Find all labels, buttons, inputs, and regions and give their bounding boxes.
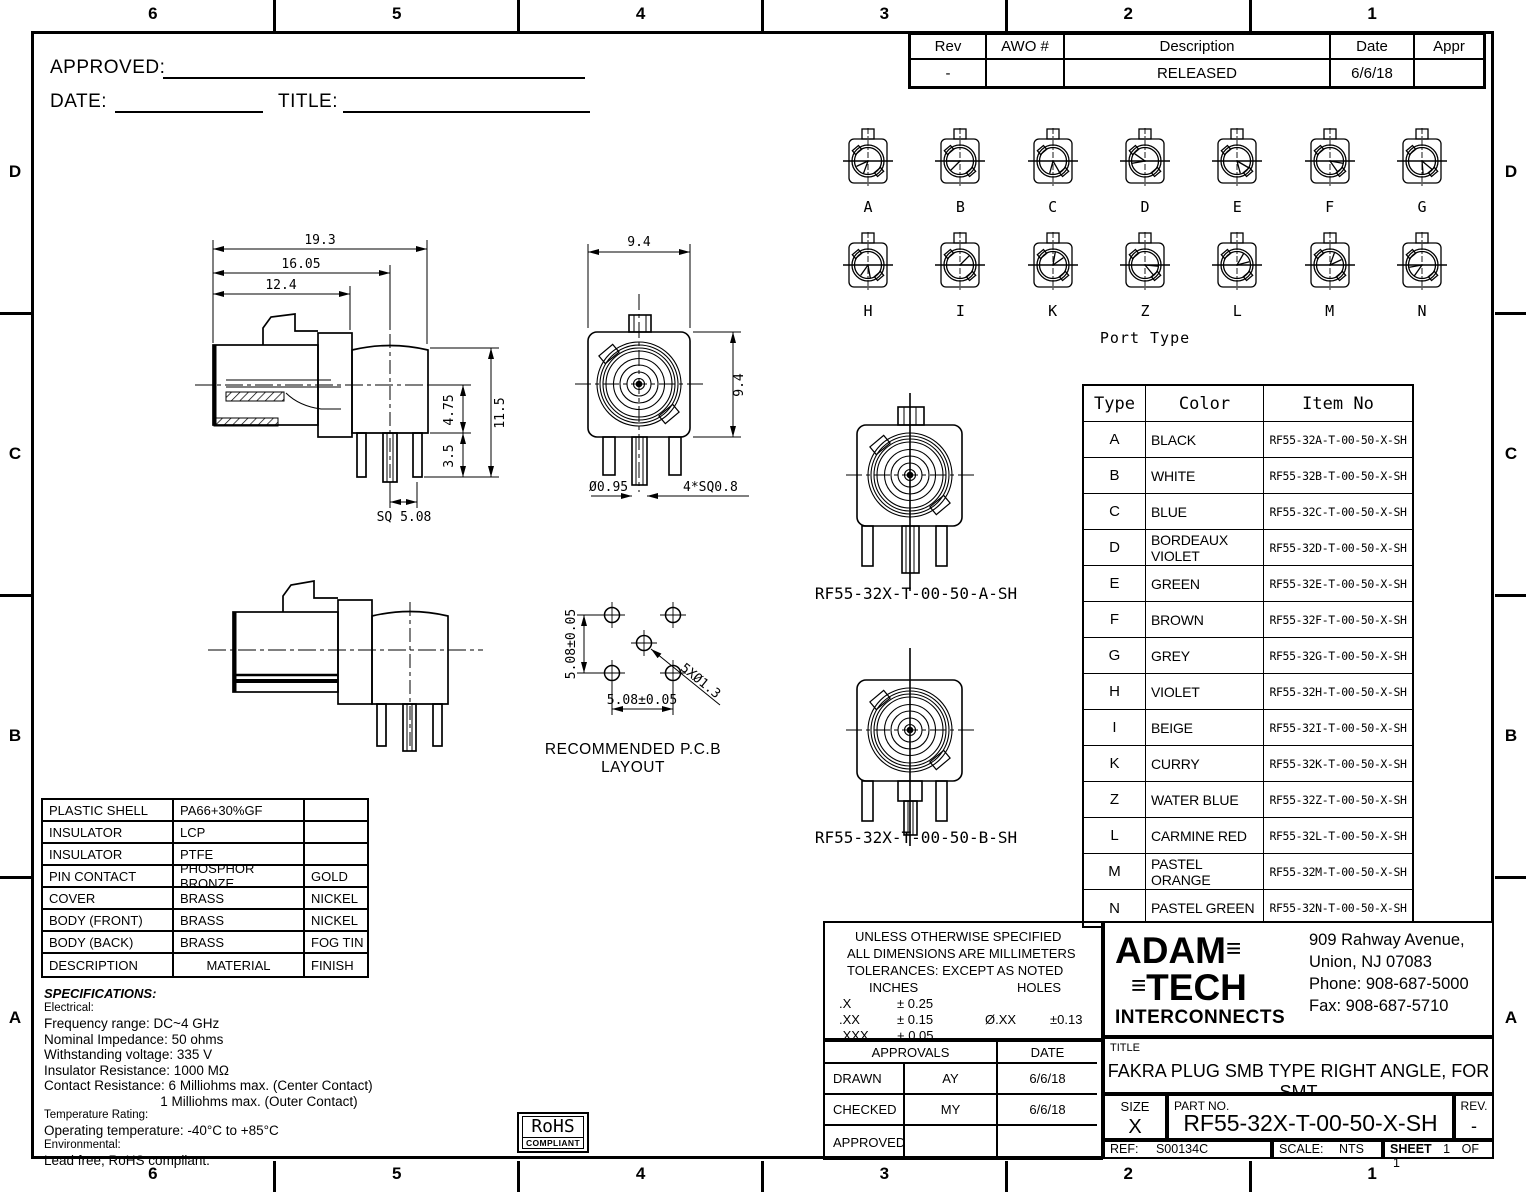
type-table-color: GREY <box>1146 638 1264 674</box>
port-type: A <box>836 127 900 216</box>
materials-table-cell <box>305 822 367 844</box>
scale-box: SCALE: NTS <box>1272 1140 1383 1159</box>
spec-section-label: Temperature Rating: <box>44 1109 464 1123</box>
title-label: TITLE: <box>278 91 338 113</box>
drawing-variant-a <box>846 391 1026 596</box>
port-type: H <box>836 231 900 320</box>
port-type-label: E <box>1205 198 1269 216</box>
type-table-color: BEIGE <box>1146 710 1264 746</box>
pcb-layout-caption: RECOMMENDED P.C.B LAYOUT <box>514 741 752 777</box>
date-fill-line <box>115 111 263 113</box>
dim-length-mid: 16.05 <box>281 257 320 272</box>
type-table-header: Type <box>1084 386 1146 422</box>
materials-table-cell: BRASS <box>174 888 305 910</box>
approved-fill-line <box>163 77 585 79</box>
materials-table-cell: PA66+30%GF <box>174 800 305 822</box>
rev-table-header: Appr <box>1415 35 1483 60</box>
title-box-label: TITLE <box>1110 1042 1140 1054</box>
materials-table-cell: MATERIAL <box>174 954 305 976</box>
port-type-label: I <box>928 302 992 320</box>
zone-tick-left <box>0 876 31 879</box>
company-logo: ADAM≡ ≡TECH INTERCONNECTS <box>1115 931 1285 1029</box>
zone-column-label-bottom: 1 <box>1357 1164 1387 1184</box>
port-type: K <box>1021 231 1085 320</box>
type-table-color: GREEN <box>1146 566 1264 602</box>
type-table-item-no: RF55-32D-T-00-50-X-SH <box>1264 530 1412 566</box>
date-label: DATE: <box>50 91 107 113</box>
specifications-body: Electrical:Frequency range: DC~4 GHzNomi… <box>44 1002 464 1168</box>
tolerance-line-2: ALL DIMENSIONS ARE MILLIMETERS <box>847 946 1076 961</box>
rev-value: - <box>1456 1116 1492 1137</box>
zone-row-label-right: D <box>1499 162 1523 182</box>
zone-column-label-bottom: 4 <box>626 1164 656 1184</box>
materials-table-cell: PIN CONTACT <box>43 866 174 888</box>
dim-length-front: 12.4 <box>265 278 296 293</box>
type-table-item-no: RF55-32A-T-00-50-X-SH <box>1264 422 1412 458</box>
rev-table-cell <box>1415 60 1483 86</box>
logo-adam: ADAM <box>1115 930 1226 971</box>
title-fill-line <box>343 111 590 113</box>
checked-label: CHECKED <box>825 1095 905 1126</box>
company-address: 909 Rahway Avenue, Union, NJ 07083 Phone… <box>1309 929 1469 1017</box>
zone-column-label-bottom: 3 <box>869 1164 899 1184</box>
type-table-item-no: RF55-32Z-T-00-50-X-SH <box>1264 782 1412 818</box>
type-color-item-table: TypeColorItem NoABLACKRF55-32A-T-00-50-X… <box>1082 384 1414 928</box>
zone-column-label-top: 5 <box>382 4 412 24</box>
approved-date <box>998 1126 1097 1158</box>
type-table-item-no: RF55-32I-T-00-50-X-SH <box>1264 710 1412 746</box>
drawing-side-view-dimensioned: 19.3 16.05 12.4 4.75 3.5 11.5 SQ 5.08 <box>181 230 581 530</box>
materials-table-cell: NICKEL <box>305 910 367 932</box>
approved-label: APPROVED: <box>50 57 165 79</box>
type-table-color: WHITE <box>1146 458 1264 494</box>
approvals-table: APPROVALS DATE DRAWN AY 6/6/18 CHECKED M… <box>823 1040 1103 1160</box>
dim-height-center: 4.75 <box>442 394 457 425</box>
approvals-header: APPROVALS <box>825 1042 998 1064</box>
materials-table-cell: FINISH <box>305 954 367 976</box>
port-type: G <box>1390 127 1454 216</box>
drawing-sheet: 665544332211DDCCBBAA APPROVED: DATE: TIT… <box>0 0 1526 1192</box>
address-line-3: Phone: 908-687-5000 <box>1309 973 1469 995</box>
type-table-type: I <box>1084 710 1146 746</box>
zone-row-label-right: A <box>1499 1008 1523 1028</box>
address-line-2: Union, NJ 07083 <box>1309 951 1469 973</box>
port-connector-icon <box>1304 127 1356 189</box>
sheet-label: SHEET <box>1390 1142 1432 1156</box>
rev-table-cell: RELEASED <box>1065 60 1331 86</box>
zone-column-label-top: 2 <box>1113 4 1143 24</box>
size-label: SIZE <box>1105 1099 1165 1114</box>
port-type: M <box>1298 231 1362 320</box>
drawing-front-view-dimensioned: 9.4 9.4 Ø0.95 4*SQ0.8 <box>563 230 818 530</box>
zone-row-label-left: B <box>3 726 27 746</box>
approvals-date-header: DATE <box>998 1042 1097 1064</box>
zone-column-label-top: 3 <box>869 4 899 24</box>
zone-row-label-left: D <box>3 162 27 182</box>
type-table-item-no: RF55-32M-T-00-50-X-SH <box>1264 854 1412 890</box>
logo-lines-right-icon: ≡ <box>1226 933 1241 963</box>
type-table-type: D <box>1084 530 1146 566</box>
type-table-item-no: RF55-32K-T-00-50-X-SH <box>1264 746 1412 782</box>
dim-pin-diameter: Ø0.95 <box>589 480 628 495</box>
type-table-item-no: RF55-32E-T-00-50-X-SH <box>1264 566 1412 602</box>
drawing-variant-b <box>846 646 1026 851</box>
type-table-color: CARMINE RED <box>1146 818 1264 854</box>
port-type-label: N <box>1390 302 1454 320</box>
size-box: SIZE X <box>1103 1094 1167 1140</box>
zone-column-label-bottom: 2 <box>1113 1164 1143 1184</box>
port-connector-icon <box>1027 231 1079 293</box>
rev-table-cell <box>987 60 1065 86</box>
zone-row-label-left: A <box>3 1008 27 1028</box>
tolerance-line-3: TOLERANCES: EXCEPT AS NOTED <box>847 963 1063 978</box>
zone-tick-bottom <box>1249 1161 1252 1192</box>
zone-tick-right <box>1495 876 1526 879</box>
spec-line: Withstanding voltage: 335 V <box>44 1047 464 1063</box>
specifications-title: SPECIFICATIONS: <box>44 986 464 1002</box>
type-table-color: VIOLET <box>1146 674 1264 710</box>
checked-initials: MY <box>905 1095 998 1126</box>
drawn-initials: AY <box>905 1064 998 1095</box>
type-table-color: BORDEAUX VIOLET <box>1146 530 1264 566</box>
tolerance-holes-label: HOLES <box>1017 980 1061 995</box>
port-connector-icon <box>1396 127 1448 189</box>
zone-row-label-right: C <box>1499 444 1523 464</box>
spec-line: Frequency range: DC~4 GHz <box>44 1016 464 1032</box>
address-line-4: Fax: 908-687-5710 <box>1309 995 1469 1017</box>
company-block: ADAM≡ ≡TECH INTERCONNECTS 909 Rahway Ave… <box>1103 921 1494 1037</box>
tolerance-line-1: UNLESS OTHERWISE SPECIFIED <box>855 929 1061 944</box>
zone-tick-bottom <box>517 1161 520 1192</box>
type-table-header: Item No <box>1264 386 1412 422</box>
type-table-type: M <box>1084 854 1146 890</box>
port-connector-icon <box>1211 127 1263 189</box>
part-no-box: PART NO. RF55-32X-T-00-50-X-SH <box>1167 1094 1454 1140</box>
zone-tick-left <box>0 594 31 597</box>
materials-table-cell: INSULATOR <box>43 822 174 844</box>
zone-tick-bottom <box>1005 1161 1008 1192</box>
port-type-label: A <box>836 198 900 216</box>
port-type: L <box>1205 231 1269 320</box>
zone-tick-top <box>273 0 276 31</box>
type-table-type: L <box>1084 818 1146 854</box>
sheet-box: SHEET 1 OF 1 <box>1383 1140 1494 1159</box>
zone-tick-left <box>0 312 31 315</box>
pcb-hole-callout: 5XØ1.3 <box>677 661 723 702</box>
materials-table-cell: PHOSPHOR BRONZE <box>174 866 305 888</box>
type-table-type: B <box>1084 458 1146 494</box>
port-type-row-2: H I K <box>836 231 1454 320</box>
pcb-dim-vertical: 5.08±0.05 <box>564 609 579 679</box>
rev-box: REV. - <box>1454 1094 1494 1140</box>
materials-table-cell: DESCRIPTION <box>43 954 174 976</box>
type-table-header: Color <box>1146 386 1264 422</box>
materials-table-cell <box>305 800 367 822</box>
variant-b-label: RF55-32X-T-00-50-B-SH <box>806 828 1026 847</box>
zone-row-label-left: C <box>3 444 27 464</box>
port-connector-icon <box>934 127 986 189</box>
type-table-type: G <box>1084 638 1146 674</box>
rev-label: REV. <box>1456 1099 1492 1113</box>
port-type-label: Z <box>1113 302 1177 320</box>
zone-tick-top <box>517 0 520 31</box>
tol-row-x-value: ± 0.25 <box>897 996 933 1011</box>
materials-table-cell: LCP <box>174 822 305 844</box>
materials-table-cell: BRASS <box>174 910 305 932</box>
dim-front-height: 9.4 <box>732 373 747 397</box>
tolerance-inches-label: INCHES <box>869 980 918 995</box>
rev-table-cell: - <box>911 60 987 86</box>
rev-table-header: Description <box>1065 35 1331 60</box>
side-view-2-outline <box>233 581 448 751</box>
type-table-color: BLUE <box>1146 494 1264 530</box>
zone-column-label-top: 6 <box>138 4 168 24</box>
materials-table-cell: COVER <box>43 888 174 910</box>
spec-section-label: Environmental: <box>44 1139 464 1153</box>
type-table-type: Z <box>1084 782 1146 818</box>
port-type: I <box>928 231 992 320</box>
port-type-label: H <box>836 302 900 320</box>
type-table-item-no: RF55-32C-T-00-50-X-SH <box>1264 494 1412 530</box>
ref-label: REF: <box>1110 1142 1138 1156</box>
part-no-value: RF55-32X-T-00-50-X-SH <box>1169 1110 1452 1137</box>
rev-table-header: AWO # <box>987 35 1065 60</box>
port-type-label: G <box>1390 198 1454 216</box>
port-type-caption: Port Type <box>836 329 1454 347</box>
logo-interconnects: INTERCONNECTS <box>1115 1007 1285 1029</box>
scale-value: NTS <box>1339 1142 1364 1156</box>
type-table-color: BLACK <box>1146 422 1264 458</box>
tolerance-block: UNLESS OTHERWISE SPECIFIED ALL DIMENSION… <box>823 921 1103 1040</box>
size-value: X <box>1105 1116 1165 1139</box>
specifications-block: SPECIFICATIONS: Electrical:Frequency ran… <box>44 986 464 1168</box>
port-connector-icon <box>1027 127 1079 189</box>
type-table-item-no: RF55-32G-T-00-50-X-SH <box>1264 638 1412 674</box>
dim-leg-square: 4*SQ0.8 <box>683 480 738 495</box>
variant-a-label: RF55-32X-T-00-50-A-SH <box>806 584 1026 603</box>
type-table-color: WATER BLUE <box>1146 782 1264 818</box>
materials-table-cell <box>305 844 367 866</box>
port-type: E <box>1205 127 1269 216</box>
zone-tick-bottom <box>761 1161 764 1192</box>
port-type-label: F <box>1298 198 1362 216</box>
port-connector-icon <box>842 231 894 293</box>
logo-lines-left-icon: ≡ <box>1131 970 1146 1000</box>
tolerance-hole-dim: Ø.XX <box>985 1012 1016 1027</box>
dim-length-total: 19.3 <box>304 233 335 248</box>
sheet-total: 1 <box>1393 1156 1400 1170</box>
dim-front-width: 9.4 <box>627 235 651 250</box>
rev-table-header: Date <box>1331 35 1415 60</box>
spec-section-label: Electrical: <box>44 1002 464 1016</box>
port-type-label: B <box>928 198 992 216</box>
port-connector-icon <box>1304 231 1356 293</box>
tol-row-xx-value: ± 0.15 <box>897 1012 933 1027</box>
type-table-type: E <box>1084 566 1146 602</box>
checked-date: 6/6/18 <box>998 1095 1097 1126</box>
spec-line: Contact Resistance: 6 Milliohms max. (Ce… <box>44 1078 464 1094</box>
pcb-holes <box>599 602 686 686</box>
rev-table-header: Rev <box>911 35 987 60</box>
port-type: D <box>1113 127 1177 216</box>
port-type-label: D <box>1113 198 1177 216</box>
port-connector-icon <box>1119 231 1171 293</box>
port-connector-icon <box>934 231 986 293</box>
materials-table-cell: NICKEL <box>305 888 367 910</box>
zone-tick-top <box>761 0 764 31</box>
rohs-compliant-logo: RoHS COMPLIANT <box>517 1112 589 1153</box>
zone-tick-top <box>1249 0 1252 31</box>
port-type: Z <box>1113 231 1177 320</box>
type-table-type: K <box>1084 746 1146 782</box>
zone-row-label-right: B <box>1499 726 1523 746</box>
zone-tick-right <box>1495 594 1526 597</box>
drawn-label: DRAWN <box>825 1064 905 1095</box>
rohs-logo-text: RoHS <box>522 1116 584 1138</box>
type-table-color: BROWN <box>1146 602 1264 638</box>
materials-table-cell: FOG TIN <box>305 932 367 954</box>
materials-table-cell: GOLD <box>305 866 367 888</box>
drawing-side-view-external <box>198 570 488 795</box>
rev-table-cell: 6/6/18 <box>1331 60 1415 86</box>
port-connector-icon <box>1211 231 1263 293</box>
materials-table-cell: PLASTIC SHELL <box>43 800 174 822</box>
materials-table-cell: BODY (BACK) <box>43 932 174 954</box>
port-type: B <box>928 127 992 216</box>
port-type-label: M <box>1298 302 1362 320</box>
materials-table-cell: BRASS <box>174 932 305 954</box>
tol-row-x-label: .X <box>839 996 851 1011</box>
dim-leg-length: 3.5 <box>442 444 457 467</box>
type-table-type: C <box>1084 494 1146 530</box>
port-type-label: C <box>1021 198 1085 216</box>
port-connector-icon <box>842 127 894 189</box>
drawn-date: 6/6/18 <box>998 1064 1097 1095</box>
rohs-compliant-text: COMPLIANT <box>522 1138 584 1149</box>
materials-table: PLASTIC SHELLPA66+30%GFINSULATORLCPINSUL… <box>41 798 369 978</box>
dim-square-pitch: SQ 5.08 <box>377 510 432 525</box>
type-table-type: F <box>1084 602 1146 638</box>
type-table-item-no: RF55-32H-T-00-50-X-SH <box>1264 674 1412 710</box>
port-type: N <box>1390 231 1454 320</box>
type-table-item-no: RF55-32L-T-00-50-X-SH <box>1264 818 1412 854</box>
approved-initials <box>905 1126 998 1158</box>
type-table-item-no: RF55-32B-T-00-50-X-SH <box>1264 458 1412 494</box>
spec-line: Operating temperature: -40°C to +85°C <box>44 1123 464 1139</box>
approved-row-label: APPROVED <box>825 1126 905 1158</box>
spec-line: Nominal Impedance: 50 ohms <box>44 1032 464 1048</box>
pcb-dim-horizontal: 5.08±0.05 <box>607 693 677 708</box>
type-table-item-no: RF55-32F-T-00-50-X-SH <box>1264 602 1412 638</box>
zone-tick-right <box>1495 312 1526 315</box>
type-table-color: CURRY <box>1146 746 1264 782</box>
spec-line: Insulator Resistance: 1000 MΩ <box>44 1063 464 1079</box>
port-type-label: K <box>1021 302 1085 320</box>
port-type: F <box>1298 127 1362 216</box>
port-type-row-1: A B C <box>836 127 1454 216</box>
tol-row-xx-label: .XX <box>839 1012 860 1027</box>
revision-table: RevAWO #DescriptionDateAppr-RELEASED6/6/… <box>908 32 1486 89</box>
port-type: C <box>1021 127 1085 216</box>
scale-label: SCALE: <box>1279 1142 1323 1156</box>
zone-column-label-top: 1 <box>1357 4 1387 24</box>
title-box: TITLE FAKRA PLUG SMB TYPE RIGHT ANGLE, F… <box>1103 1037 1494 1094</box>
address-line-1: 909 Rahway Avenue, <box>1309 929 1469 951</box>
port-type-label: L <box>1205 302 1269 320</box>
materials-table-cell: INSULATOR <box>43 844 174 866</box>
spec-line: Lead free, RoHS compliant. <box>44 1153 464 1169</box>
zone-tick-top <box>1005 0 1008 31</box>
materials-table-cell: BODY (FRONT) <box>43 910 174 932</box>
port-connector-icon <box>1119 127 1171 189</box>
ref-box: REF: S00134C <box>1103 1140 1272 1159</box>
side-view-connector-outline <box>213 314 428 482</box>
type-table-color: PASTEL ORANGE <box>1146 854 1264 890</box>
spec-line: 1 Milliohms max. (Outer Contact) <box>44 1094 464 1110</box>
tolerance-hole-tol: ±0.13 <box>1050 1012 1082 1027</box>
logo-tech: TECH <box>1146 967 1247 1008</box>
port-connector-icon <box>1396 231 1448 293</box>
type-table-type: A <box>1084 422 1146 458</box>
type-table-type: H <box>1084 674 1146 710</box>
dim-height-total: 11.5 <box>493 397 508 428</box>
sheet-number: 1 <box>1443 1142 1450 1156</box>
ref-value: S00134C <box>1156 1142 1208 1156</box>
sheet-of-label: OF <box>1462 1142 1479 1156</box>
zone-column-label-top: 4 <box>626 4 656 24</box>
